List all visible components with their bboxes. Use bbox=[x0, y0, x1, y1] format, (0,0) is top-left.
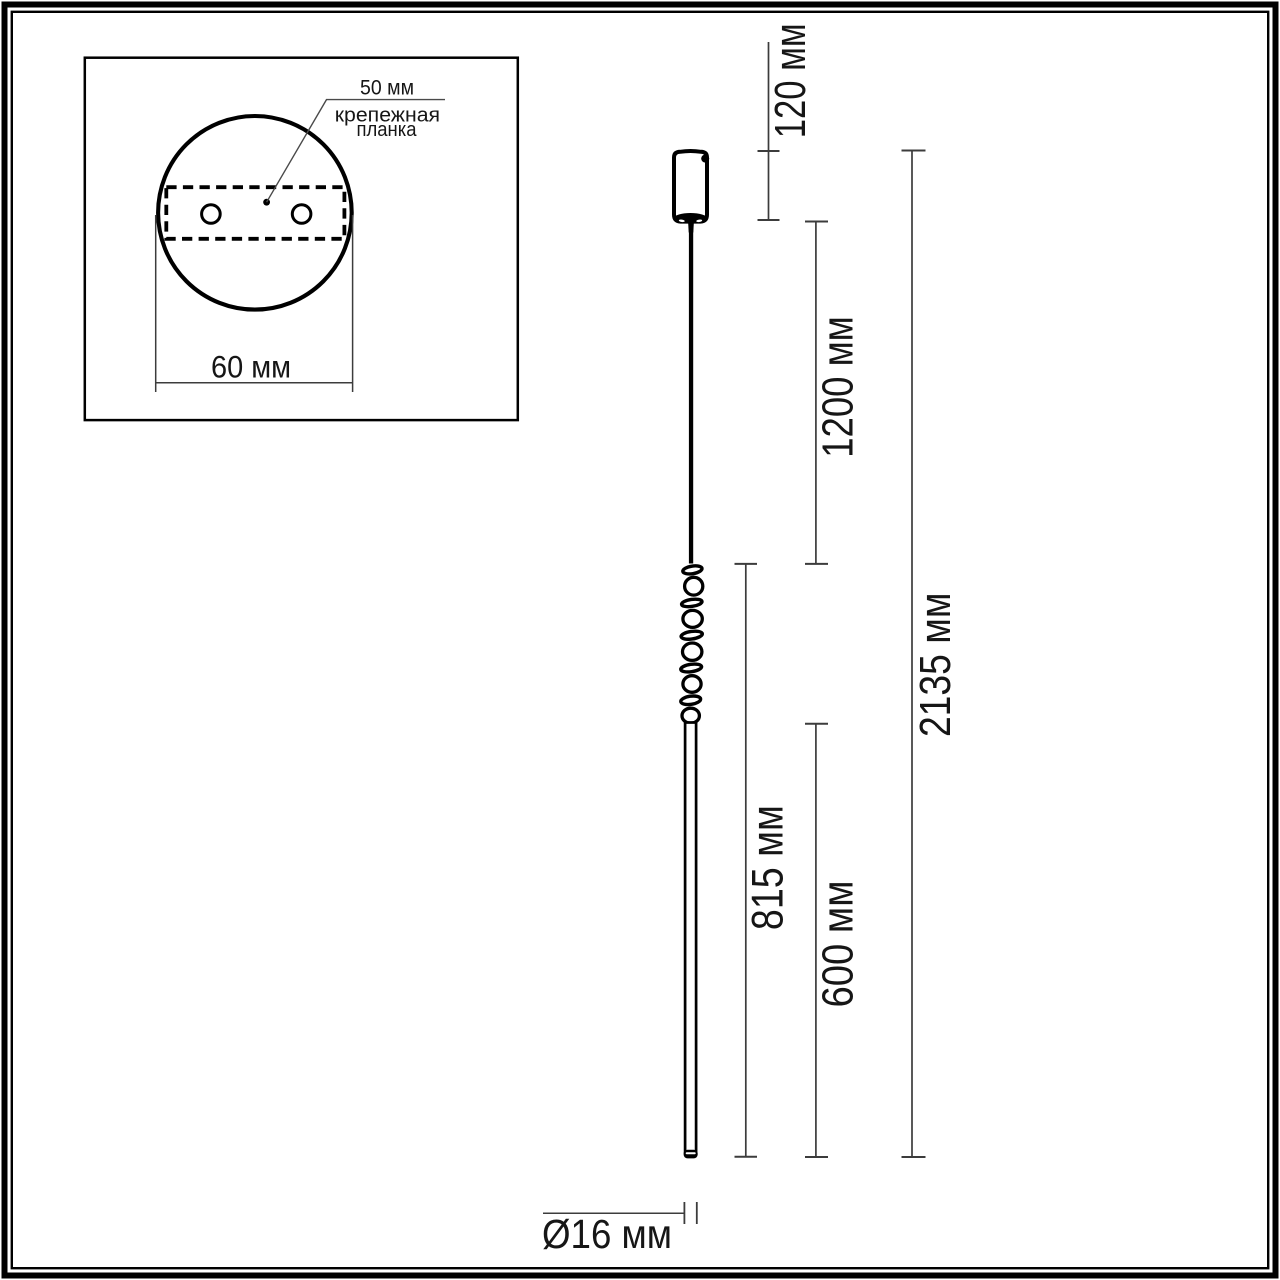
svg-text:планка: планка bbox=[357, 119, 418, 141]
svg-text:120 мм: 120 мм bbox=[766, 23, 815, 138]
svg-text:600 мм: 600 мм bbox=[813, 881, 862, 1008]
svg-text:50 мм: 50 мм bbox=[360, 77, 414, 100]
svg-text:2135 мм: 2135 мм bbox=[911, 593, 960, 738]
svg-text:1200 мм: 1200 мм bbox=[814, 316, 862, 458]
svg-text:Ø16 мм: Ø16 мм bbox=[542, 1211, 672, 1257]
svg-text:60 мм: 60 мм bbox=[211, 349, 291, 385]
svg-text:815 мм: 815 мм bbox=[743, 805, 792, 930]
